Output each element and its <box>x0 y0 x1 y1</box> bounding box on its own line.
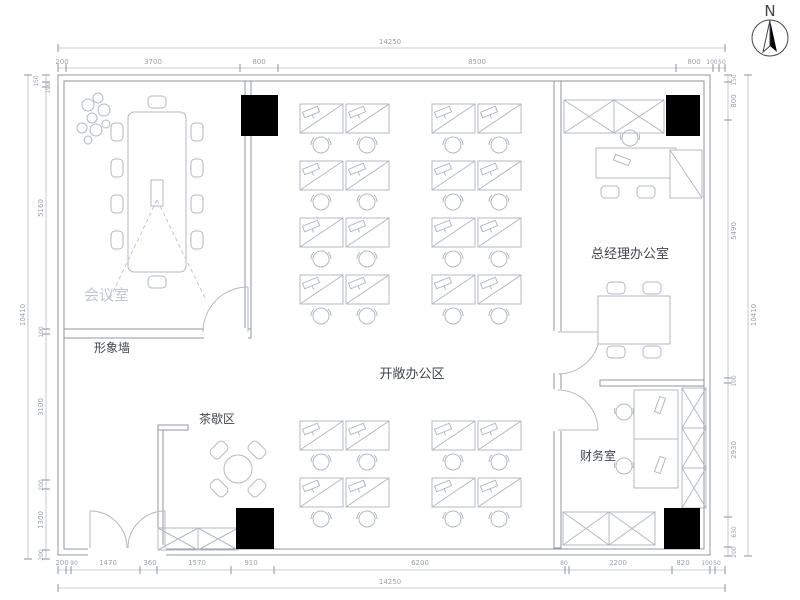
dim-label: 100 <box>701 560 713 567</box>
entrance-double-door <box>90 511 165 548</box>
dim-label: 150 <box>33 75 40 87</box>
dimension-top: 14250 200 3700 800 8500 800 100 50 <box>55 38 726 72</box>
workstation-cluster-top-left <box>300 104 389 324</box>
compass: N <box>752 2 788 56</box>
open-office-label: 开敞办公区 <box>379 366 444 382</box>
column-top-right <box>666 95 700 136</box>
finance-room <box>615 390 678 488</box>
image-wall-label: 形象墙 <box>94 341 130 355</box>
dim-label: 80 <box>560 560 568 567</box>
dim-label: 100 <box>731 375 738 387</box>
cabinet-finance-bottom <box>563 512 655 545</box>
column-bottom-left <box>236 508 274 549</box>
tea-area <box>208 439 267 498</box>
dim-label: 1470 <box>99 559 117 567</box>
conference-table <box>111 96 203 288</box>
floor-plan-canvas: 会议室 形象墙 茶歇区 开敞办公区 总经理办公室 财务室 N 14250 200… <box>0 0 800 600</box>
dim-label: 8500 <box>468 58 486 66</box>
cabinet-finance-right <box>682 388 706 508</box>
dim-label: 100 <box>45 82 52 94</box>
dim-label: 50 <box>713 560 721 567</box>
dim-label: 100 <box>706 59 718 66</box>
dim-label: 200 <box>55 559 68 567</box>
dimension-left: 150 100 5160 100 3100 200 1300 200 10410 <box>19 75 52 561</box>
meeting-room-door <box>203 287 248 332</box>
dimension-right: 150 800 5490 100 2930 630 200 10410 <box>724 74 758 558</box>
tea-area-label: 茶歇区 <box>199 411 235 426</box>
plant <box>77 93 110 144</box>
cabinet-tea-bottom <box>158 528 238 550</box>
gm-office <box>596 130 702 358</box>
dim-label: 5490 <box>730 222 738 240</box>
gm-office-label: 总经理办公室 <box>591 246 669 262</box>
workstation-cluster-bottom-left <box>300 421 389 527</box>
gm-office-door <box>558 332 600 374</box>
dim-label: 200 <box>731 546 738 558</box>
dim-label: 50 <box>718 59 726 66</box>
dim-top-overall: 14250 <box>379 38 401 46</box>
column-top-left <box>241 95 278 136</box>
dim-label: 1570 <box>188 559 206 567</box>
dim-right-overall: 10410 <box>750 304 758 326</box>
dim-label: 5160 <box>37 199 45 217</box>
workstation-cluster-top-right <box>432 104 521 324</box>
doors <box>90 287 600 548</box>
dim-label: 800 <box>730 94 738 107</box>
dim-label: 2930 <box>730 441 738 459</box>
dim-label: 630 <box>731 526 738 538</box>
meeting-room-label: 会议室 <box>84 286 129 304</box>
dim-label: 800 <box>687 58 700 66</box>
compass-needle-icon <box>770 20 777 52</box>
dim-bottom-overall: 14250 <box>379 578 401 586</box>
tea-table <box>224 455 252 483</box>
dimension-bottom: 200 90 1470 360 1570 910 6200 80 2200 82… <box>55 559 725 592</box>
dim-label: 2200 <box>609 559 627 567</box>
cabinet-gm-top <box>564 100 664 133</box>
finance-room-label: 财务室 <box>580 448 616 463</box>
dim-label: 910 <box>244 559 257 567</box>
floor-plan: 会议室 形象墙 茶歇区 开敞办公区 总经理办公室 财务室 N 14250 200… <box>0 0 800 600</box>
dim-label: 200 <box>38 479 45 491</box>
dim-label: 1300 <box>37 511 45 529</box>
dim-label: 90 <box>70 560 78 567</box>
dim-label: 100 <box>38 326 45 338</box>
column-bottom-right <box>664 508 700 549</box>
dim-label: 3700 <box>144 58 162 66</box>
gm-meeting-table <box>598 282 670 358</box>
dim-label: 360 <box>143 559 156 567</box>
dim-label: 820 <box>676 559 689 567</box>
dim-left-overall: 10410 <box>19 304 27 326</box>
meeting-room <box>77 93 205 298</box>
compass-north-label: N <box>764 2 775 20</box>
workstation-cluster-bottom-right <box>432 421 521 527</box>
dim-label: 200 <box>38 549 45 561</box>
dim-label: 200 <box>55 58 68 66</box>
finance-room-door <box>558 390 598 430</box>
dim-label: 800 <box>252 58 265 66</box>
dim-label: 150 <box>731 74 738 86</box>
dim-label: 6200 <box>411 559 429 567</box>
dim-label: 3100 <box>37 398 45 416</box>
